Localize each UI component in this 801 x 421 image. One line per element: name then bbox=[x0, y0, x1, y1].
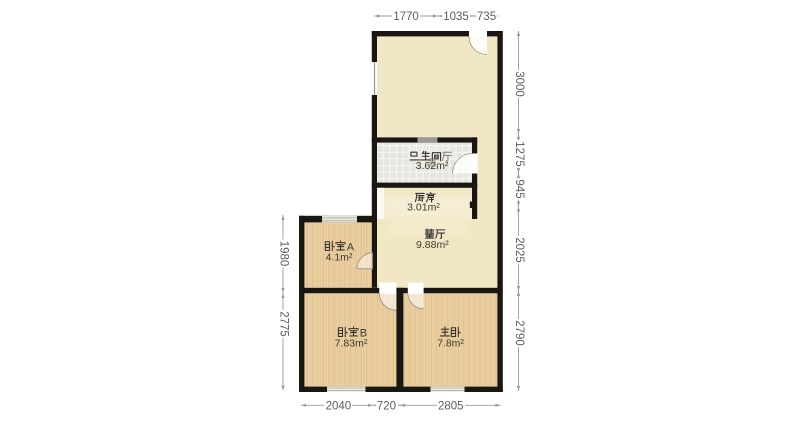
svg-text:2805: 2805 bbox=[438, 400, 464, 412]
svg-text:3.01m²: 3.01m² bbox=[407, 202, 440, 214]
svg-text:2040: 2040 bbox=[326, 400, 352, 412]
svg-text:7.83m²: 7.83m² bbox=[335, 337, 368, 349]
svg-text:945: 945 bbox=[513, 179, 525, 198]
svg-text:9.88m²: 9.88m² bbox=[416, 239, 449, 251]
svg-text:1275: 1275 bbox=[513, 141, 525, 167]
svg-text:1980: 1980 bbox=[278, 241, 290, 267]
svg-text:1035: 1035 bbox=[443, 11, 469, 23]
svg-text:7.8m²: 7.8m² bbox=[437, 338, 464, 350]
svg-text:1770: 1770 bbox=[393, 11, 419, 23]
svg-text:2790: 2790 bbox=[513, 320, 525, 346]
svg-text:4.1m²: 4.1m² bbox=[326, 252, 353, 264]
svg-text:735: 735 bbox=[477, 11, 496, 23]
svg-text:720: 720 bbox=[377, 400, 396, 412]
svg-text:2775: 2775 bbox=[278, 311, 290, 337]
svg-text:3000: 3000 bbox=[513, 71, 525, 97]
svg-text:2025: 2025 bbox=[513, 237, 525, 263]
